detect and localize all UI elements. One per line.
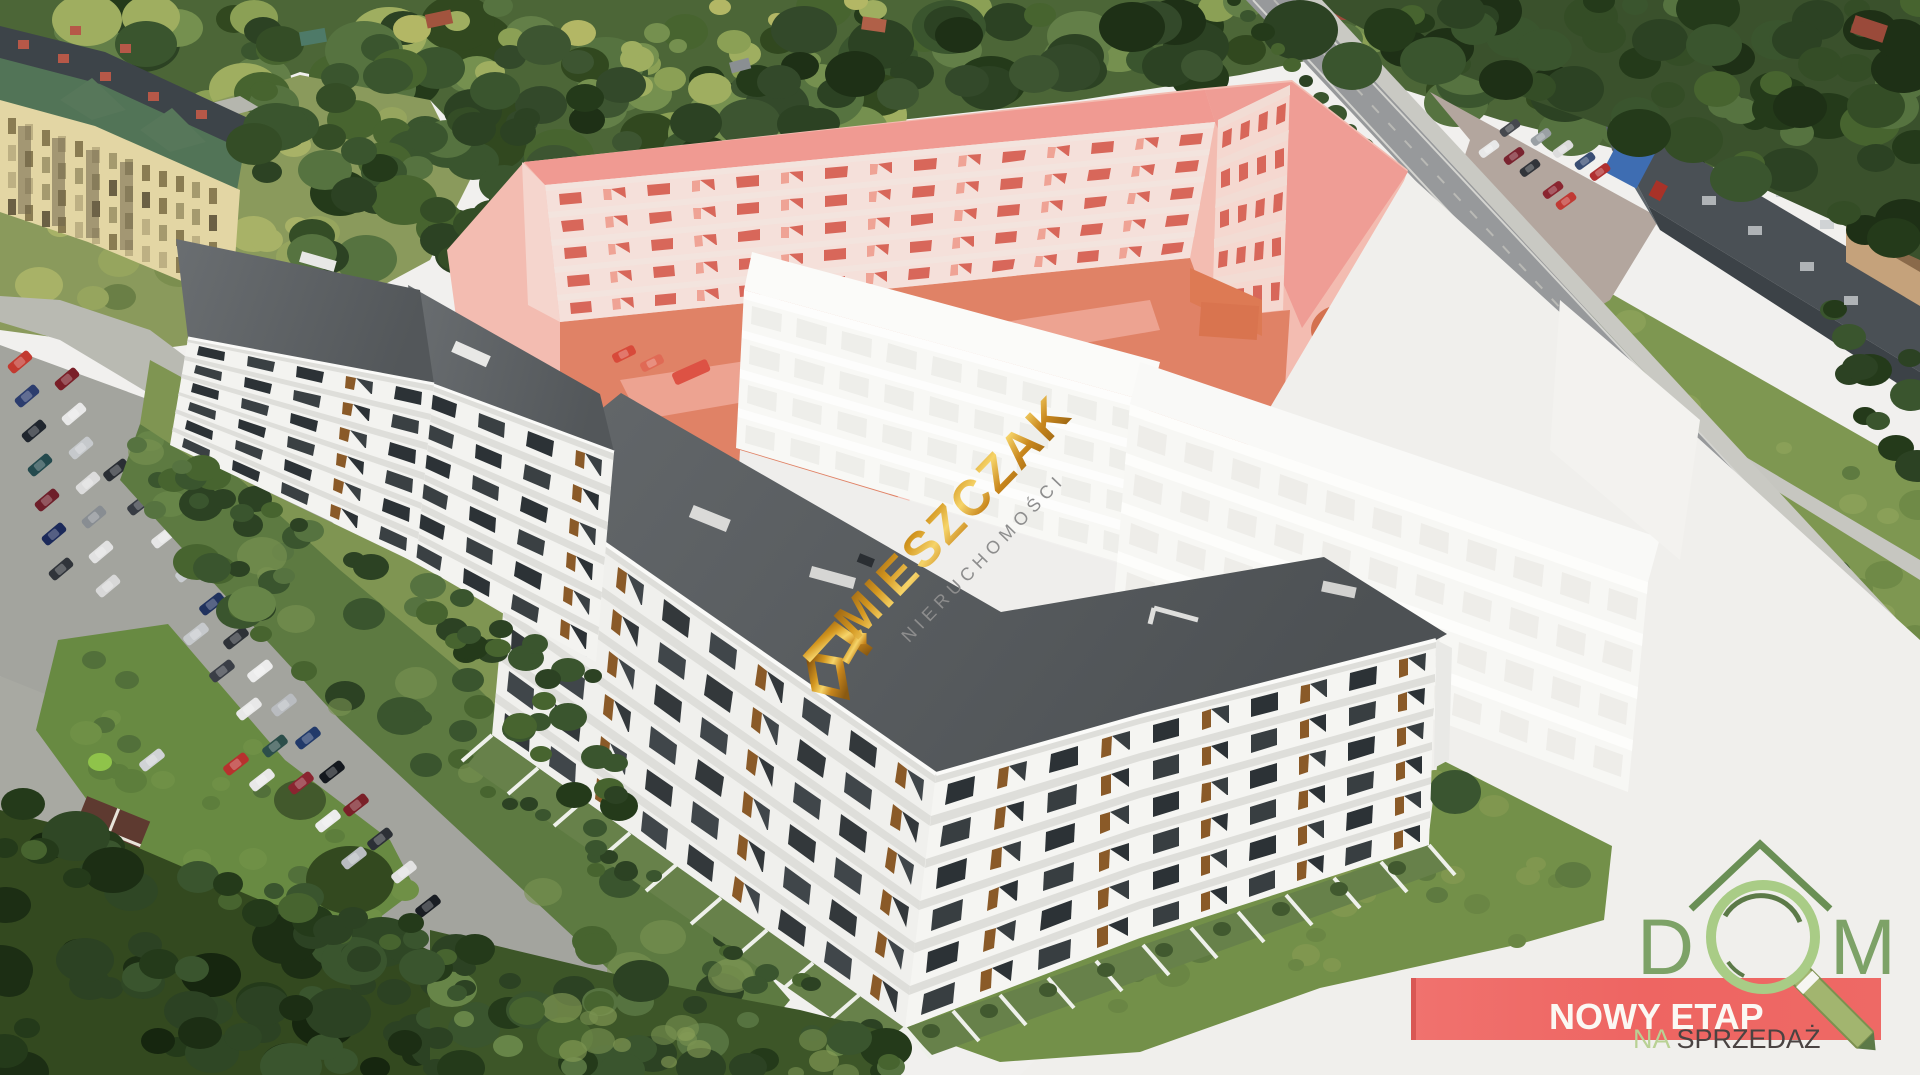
svg-text:NA SPRZEDAŻ: NA SPRZEDAŻ: [1633, 1023, 1821, 1054]
svg-text:M: M: [1830, 902, 1896, 991]
svg-text:D: D: [1637, 902, 1694, 991]
